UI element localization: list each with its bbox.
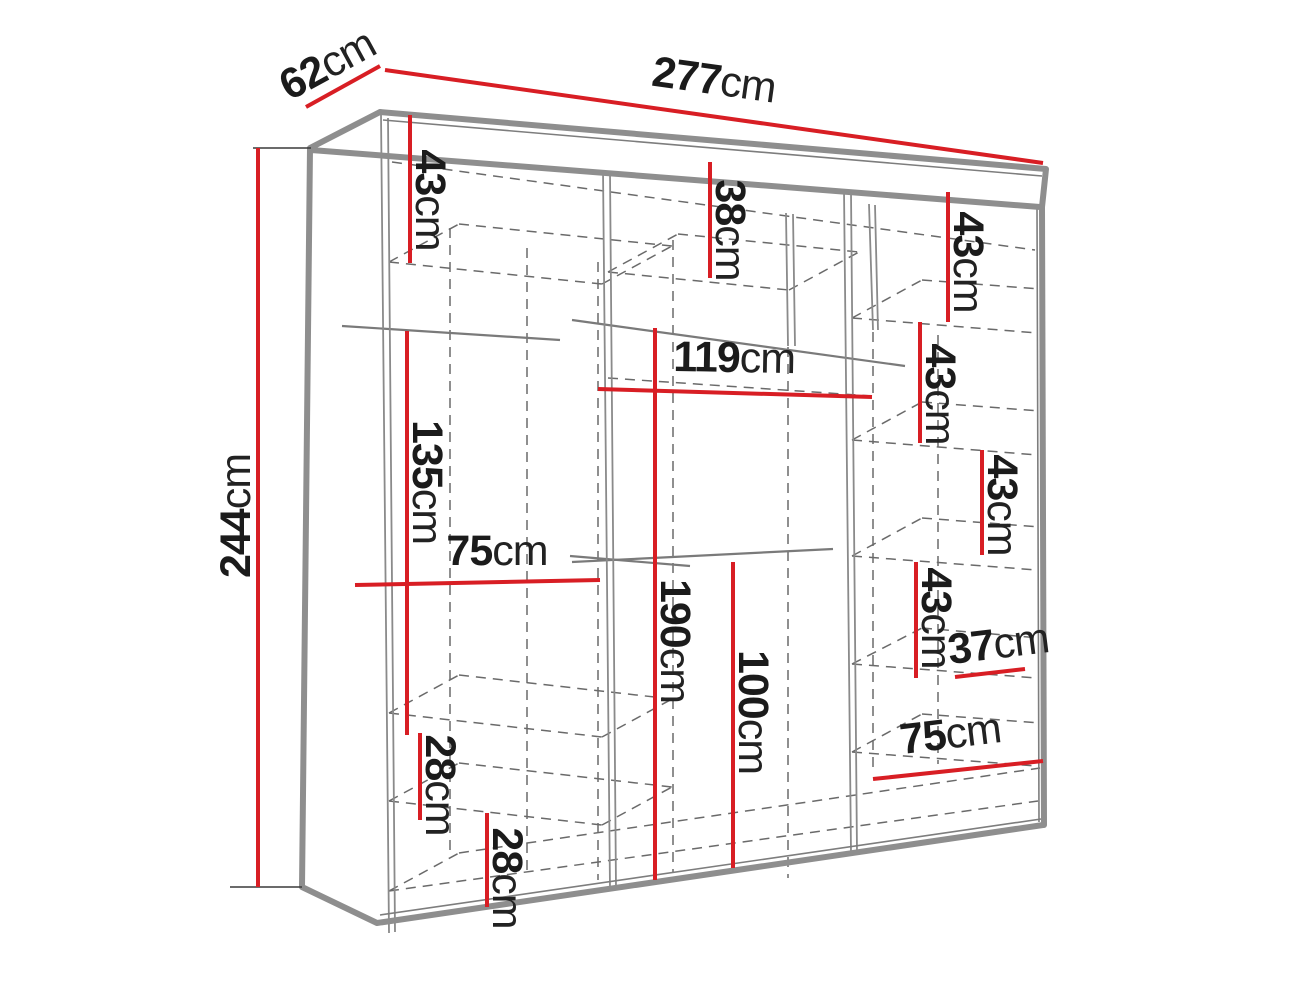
width-dimension-label: 277cm	[649, 48, 779, 113]
right-compartment-1-label: 43cm	[944, 211, 992, 312]
left-shelf-gap-lower-label: 28cm	[483, 827, 531, 928]
dimension-right-cubby-width: 37cm	[945, 614, 1051, 677]
right-section-width-label: 75cm	[897, 704, 1003, 764]
middle-top-cubby-divider	[786, 213, 795, 346]
middle-lower-height-label: 100cm	[729, 650, 777, 774]
left-section-width-label: 75cm	[446, 527, 547, 575]
dimension-depth: 62cm	[271, 19, 383, 109]
dimension-left-shelf-gap-lower: 28cm	[483, 813, 531, 929]
divider-right-back-edge	[869, 204, 878, 330]
dimension-left-shelf-gap-upper: 28cm	[416, 733, 464, 836]
left-shelf-gap-upper-label: 28cm	[416, 734, 464, 835]
height-dimension-label: 244cm	[212, 454, 260, 578]
divider-middle-right	[844, 190, 857, 853]
left-wall-inner-edge	[381, 114, 395, 933]
right-compartment-2-label: 43cm	[916, 343, 964, 444]
right-section-width-line	[873, 761, 1043, 779]
middle-section-width-label: 119cm	[673, 333, 796, 383]
middle-top-cubby-label: 38cm	[706, 179, 754, 280]
left-hanging-height-label: 135cm	[403, 420, 451, 544]
divider-left-middle	[603, 170, 616, 890]
dimension-right-compartment-1: 43cm	[944, 192, 992, 322]
dimension-left-top-shelf: 43cm	[406, 115, 454, 263]
dimension-left-hanging-height: 135cm	[403, 331, 451, 735]
wardrobe-dimension-diagram: 62cm 277cm 244cm 43cm 38cm 43cm 43cm	[0, 0, 1310, 983]
right-cubby-width-label: 37cm	[945, 614, 1051, 674]
left-lower-shelf-1	[389, 675, 672, 737]
dimension-width: 277cm	[385, 48, 1043, 163]
dimension-middle-top-cubby: 38cm	[706, 162, 754, 281]
wardrobe-diagram-canvas: 62cm 277cm 244cm 43cm 38cm 43cm 43cm	[0, 0, 1310, 983]
dimension-right-compartment-3: 43cm	[978, 450, 1026, 556]
dimension-right-section-width: 75cm	[873, 704, 1043, 779]
dimension-right-compartment-2: 43cm	[916, 322, 964, 445]
left-top-shelf-label: 43cm	[406, 149, 454, 250]
dimension-middle-lower-height: 100cm	[729, 562, 777, 868]
dimension-height: 244cm	[212, 148, 260, 887]
dimension-middle-hanging-height: 190cm	[651, 328, 699, 880]
right-compartment-3-label: 43cm	[978, 454, 1026, 555]
middle-hanging-height-label: 190cm	[651, 579, 699, 703]
